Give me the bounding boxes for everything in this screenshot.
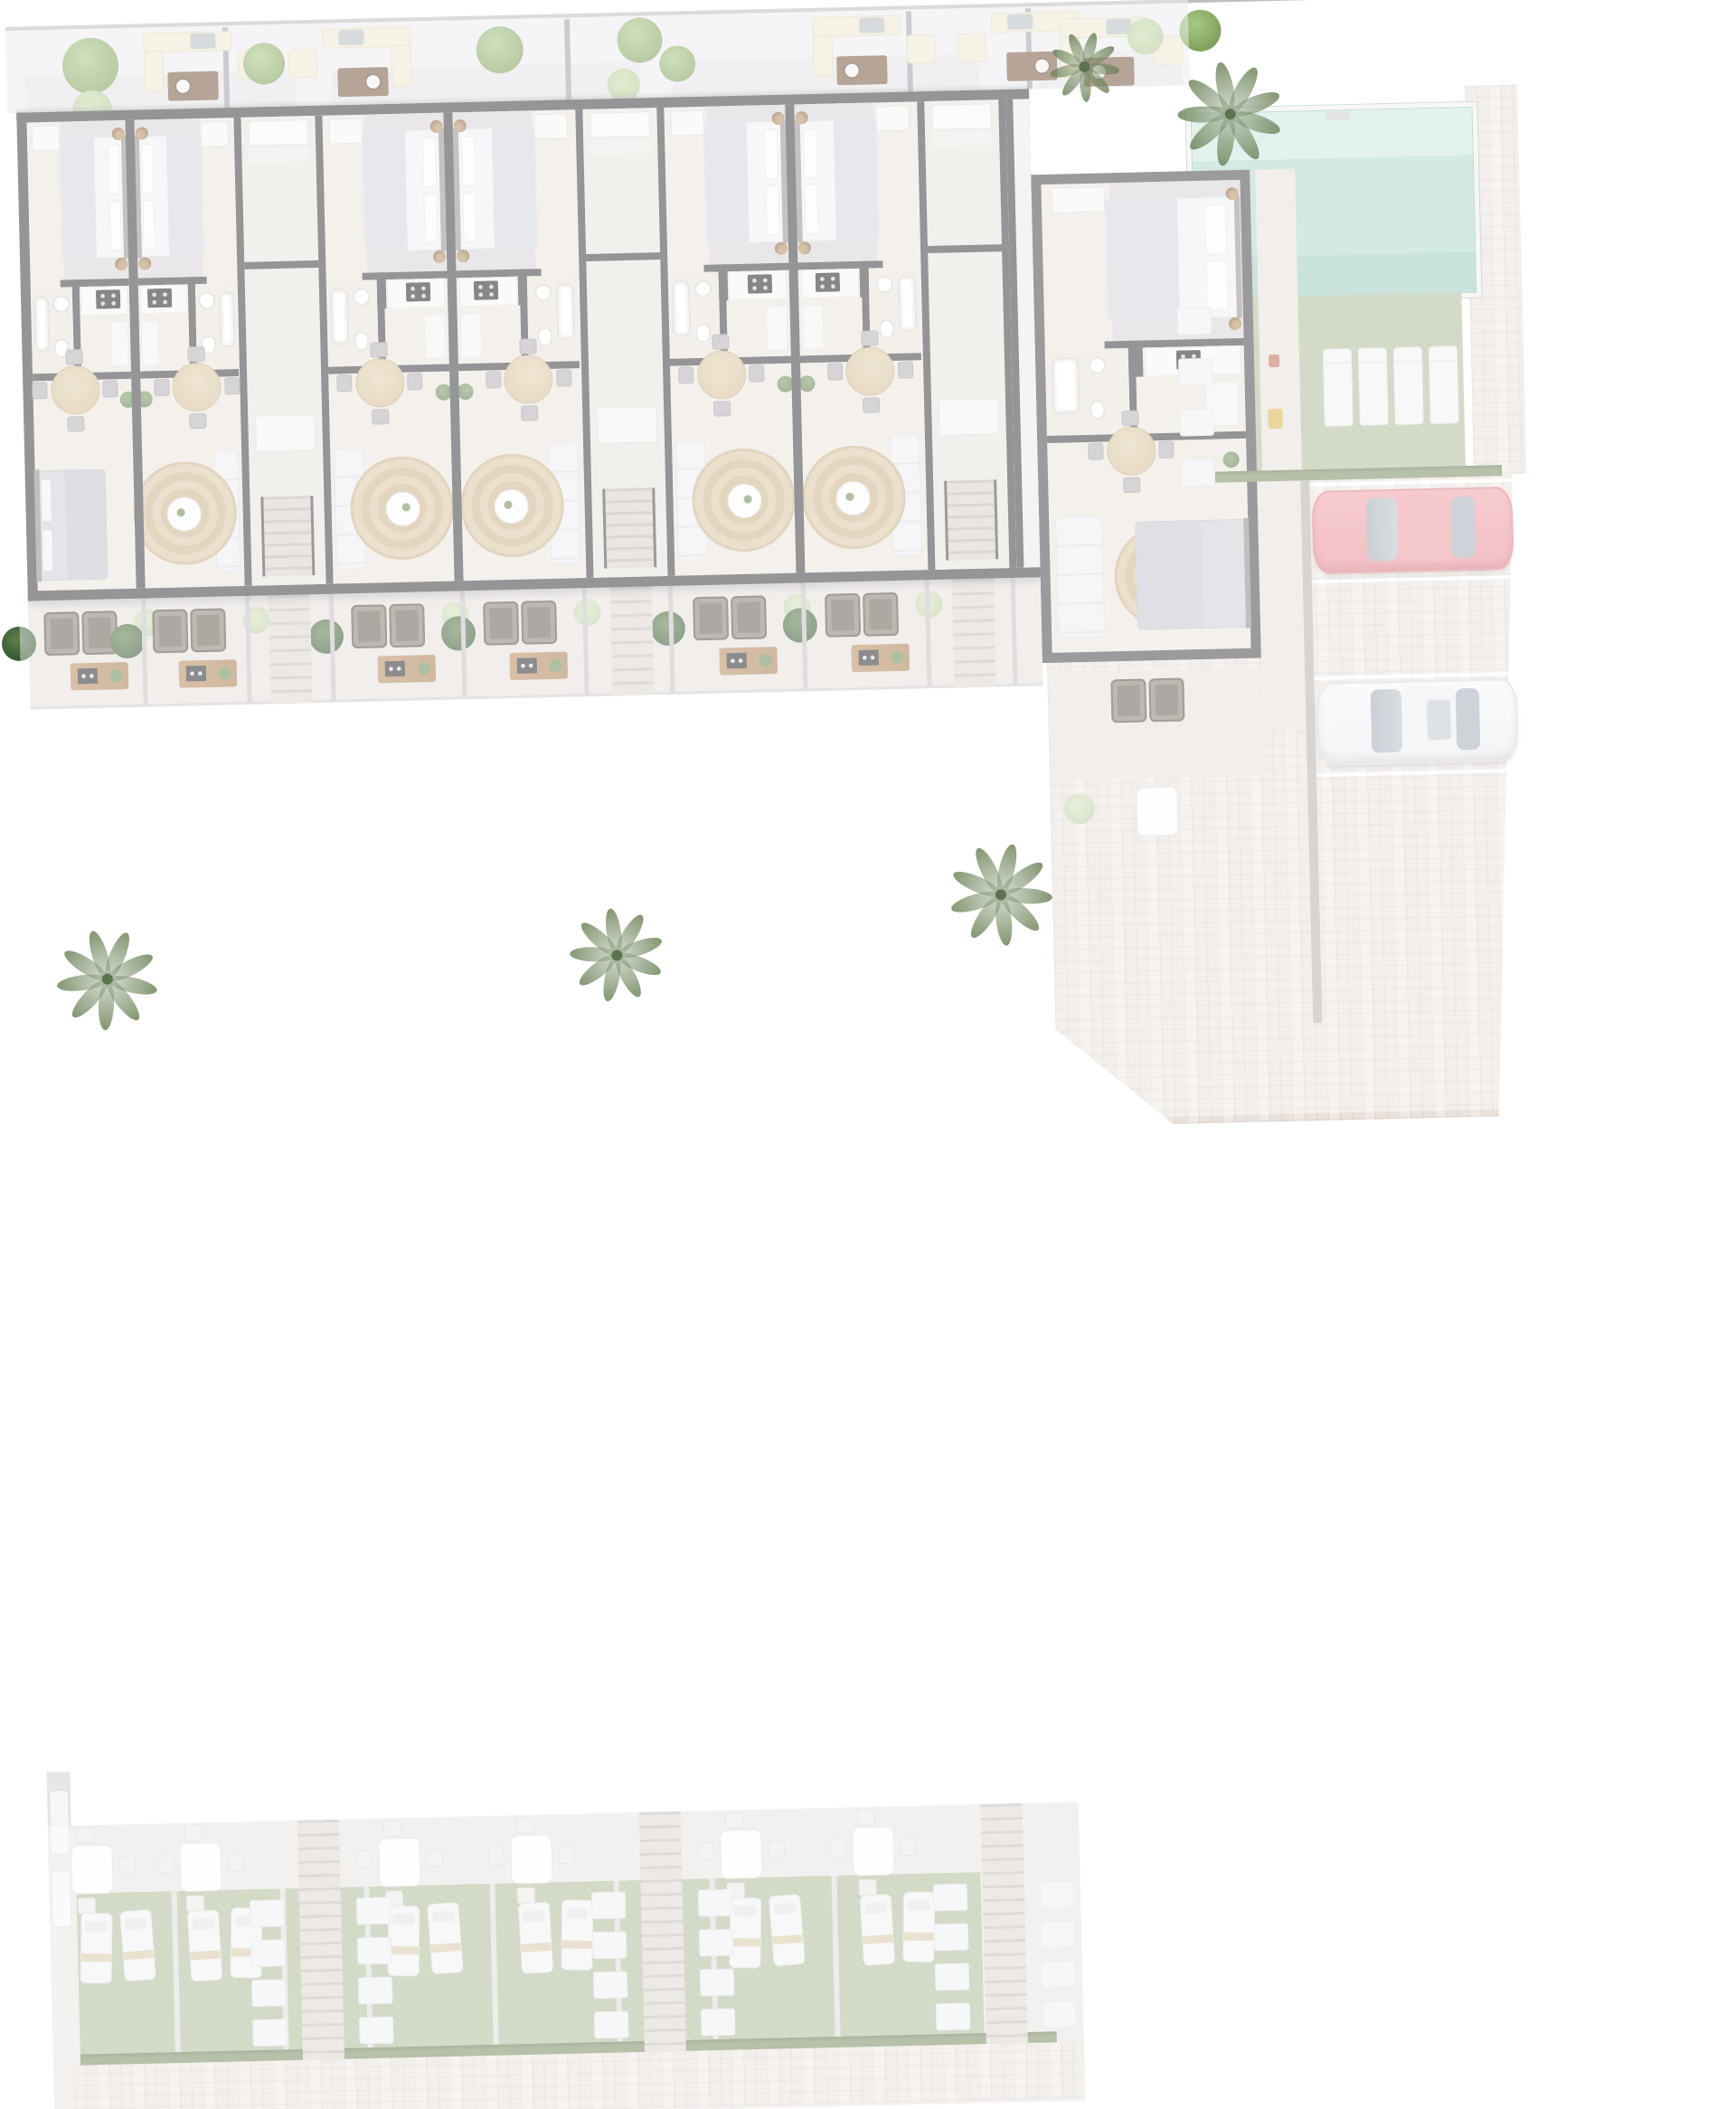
kitchen-wall [72, 287, 80, 316]
pillow [461, 137, 476, 186]
dining-table [844, 346, 894, 396]
staircase [260, 496, 315, 576]
terrace-divider-wall [564, 19, 571, 99]
stepping-pad [594, 2010, 629, 2038]
palm-frond [1223, 64, 1262, 118]
terrace-armchair [190, 608, 226, 652]
lounger-strap [190, 1950, 220, 1960]
palm-frond [56, 971, 108, 993]
terrace-armchair [825, 593, 861, 638]
kitchen-wall [518, 276, 527, 305]
plant [110, 669, 123, 682]
nightstand [112, 128, 125, 140]
nightstand [1229, 317, 1241, 330]
garden-chair [383, 1820, 401, 1836]
palm-frond [1223, 110, 1264, 164]
sink [875, 276, 892, 293]
lounger-strap [124, 1950, 155, 1960]
garden-dining-table [378, 1838, 420, 1887]
outdoor-sofa [143, 31, 231, 52]
palm-frond [993, 843, 1020, 897]
cooktop [815, 272, 839, 292]
apartment-unit [1041, 180, 1250, 653]
plant [418, 662, 430, 675]
terrace-armchair [483, 601, 519, 646]
stepping-pad [250, 1899, 285, 1927]
kitchen-cabinet [424, 314, 447, 360]
dining-chair [372, 409, 389, 424]
edge-fade [1362, 0, 1736, 1026]
headboard [1233, 195, 1241, 318]
sun-lounger [427, 1902, 464, 1974]
garden-chair [725, 1811, 743, 1828]
terrace-armchair [863, 592, 899, 637]
palm-frond [995, 889, 1043, 936]
garden-chair [698, 1842, 714, 1860]
gardens-zone [48, 1802, 1085, 2109]
lounger-headrest [125, 1917, 147, 1930]
dining-chair [519, 338, 536, 354]
lounger-headrest [566, 1908, 588, 1919]
coffee-table [167, 71, 219, 100]
double-bed [362, 129, 445, 252]
bed-blanket [64, 470, 107, 580]
grill-icon [517, 657, 537, 674]
palm-frond [1227, 88, 1282, 122]
nightstand [771, 112, 784, 125]
palm-tree [954, 847, 1048, 941]
garden-chair [859, 1879, 877, 1896]
neighbor-sofa [51, 1871, 71, 1928]
sofa [1055, 516, 1106, 638]
palm-frond [610, 952, 645, 1000]
kitchen-wall [719, 271, 728, 300]
storage-cabinet [249, 119, 309, 147]
stepping-pad [1181, 459, 1216, 487]
sun-lounger [902, 1892, 935, 1962]
dining-chair [712, 334, 729, 349]
terrace-armchair [1148, 677, 1184, 722]
bathtub [33, 296, 51, 352]
bedroom-carpet [1109, 180, 1243, 341]
sofa-throw [190, 33, 215, 50]
lounger-headrest [85, 1921, 107, 1932]
stepping-pad [359, 2017, 394, 2045]
garden-chair [186, 1895, 204, 1911]
pillow [765, 185, 779, 235]
lounger-headrest [734, 1906, 756, 1916]
second-bed [37, 469, 108, 582]
apartment-unit [26, 120, 136, 591]
wardrobe [534, 113, 568, 139]
stepping-pad [935, 1962, 970, 1991]
bathtub [898, 275, 918, 331]
stepping-pad [1043, 2000, 1078, 2029]
cooktop [96, 289, 120, 309]
pool-ladder-icon [1326, 111, 1350, 120]
dining-chair [189, 413, 206, 429]
parking-wall [1300, 480, 1322, 1023]
lounger-strap [731, 1938, 760, 1946]
dining-chair [1159, 441, 1175, 459]
nightstand [433, 251, 446, 263]
plant [1222, 451, 1239, 468]
cooktop [147, 288, 172, 308]
palm-tree [1182, 66, 1278, 162]
bathtub [219, 291, 236, 347]
dining-chair [154, 379, 169, 396]
lounger-strap [521, 1943, 551, 1953]
stepping-pad [251, 1979, 287, 2007]
palm-frond [996, 858, 1047, 902]
stepping-pad [358, 1977, 393, 2005]
pillow [423, 194, 438, 243]
bathtub [330, 288, 350, 345]
lounger-strap [81, 1953, 111, 1962]
garden-chair [515, 1817, 533, 1833]
terrace-divider [1011, 578, 1018, 685]
garden-chair [356, 1850, 373, 1868]
stepping-pad [250, 1939, 286, 1967]
terrace-armchair [521, 601, 557, 645]
storage-cabinet [255, 414, 316, 452]
palm-trunk [611, 950, 622, 960]
staircase [944, 479, 998, 560]
kitchen-wall [188, 284, 195, 313]
terrace-armchair [389, 603, 425, 648]
garden-chair [119, 1856, 136, 1874]
stepping-pad [1040, 1881, 1075, 1909]
bed-blanket [60, 138, 98, 259]
lounger-headrest [774, 1902, 797, 1915]
dining-chair [863, 397, 880, 412]
sun-lounger [119, 1909, 156, 1981]
garden-stair-path [297, 1820, 344, 2060]
garden-chair [184, 1824, 203, 1840]
floor-plan-page: { "scene": { "type": "architectural-site… [0, 0, 1736, 1054]
dining-chair [521, 405, 538, 421]
dining-table [51, 365, 100, 415]
coffee-table [1149, 559, 1184, 594]
interior-wall [586, 252, 660, 261]
pillow [763, 129, 778, 179]
grill-icon [78, 668, 98, 685]
apartment-unit [134, 118, 243, 588]
outdoor-sofa [144, 51, 165, 93]
plant [550, 659, 562, 672]
toilet [878, 319, 893, 338]
garden-chair [829, 1839, 845, 1858]
stepping-pad [699, 1929, 734, 1957]
bbq-table [851, 644, 910, 672]
dining-chair [65, 349, 82, 364]
palm-frond [600, 954, 624, 1003]
bed-blanket [1136, 521, 1203, 629]
garden-chair [768, 1840, 784, 1858]
stepping-pad [934, 1923, 969, 1951]
garden-dining-table [71, 1845, 113, 1895]
interior-wall [1047, 431, 1246, 443]
toilet [537, 327, 552, 346]
bed-blanket [491, 128, 537, 248]
palm-frond [615, 934, 664, 962]
outdoor-chair [957, 33, 986, 62]
wardrobe [670, 110, 703, 137]
faded-end-apartment [1031, 170, 1261, 664]
dining-chair [371, 342, 388, 357]
bed-blanket [1106, 199, 1180, 320]
sofa-throw [338, 30, 363, 46]
end-unit-terrace [1052, 667, 1262, 780]
bbq-table [719, 647, 778, 675]
dining-chair [336, 374, 352, 392]
wardrobe [1052, 186, 1106, 213]
palm-frond [1177, 106, 1231, 123]
palm-frond [106, 971, 158, 998]
round-tree [1179, 9, 1222, 52]
plant [458, 383, 474, 400]
dining-chair [749, 364, 764, 382]
pillow [1204, 204, 1227, 254]
dining-chair [1123, 478, 1140, 493]
terrace-plant [2, 626, 37, 661]
double-bed [137, 135, 204, 258]
bathtub [672, 280, 692, 336]
kitchen-wall [377, 279, 386, 308]
stair-lobby [233, 116, 333, 586]
lounger-strap [430, 1943, 461, 1953]
kitchen-counter [1145, 345, 1241, 376]
palm-frond [993, 894, 1014, 947]
plant [759, 654, 772, 667]
dining-chair [678, 366, 693, 383]
palm-frond [576, 950, 621, 989]
stair-path [610, 586, 655, 695]
apartment-unit [664, 105, 796, 576]
pillow [463, 193, 477, 242]
grill-icon [858, 649, 878, 666]
bed-blanket [833, 119, 879, 240]
palm-trunk [995, 889, 1006, 900]
dining-chair [1089, 443, 1104, 460]
palm-frond [578, 919, 622, 960]
coffee-table [337, 67, 389, 97]
path-prop-red [1269, 355, 1279, 367]
double-bed [1105, 196, 1239, 320]
dining-table [503, 355, 552, 404]
terrace-plant [782, 608, 817, 643]
palm-frond [1214, 113, 1238, 167]
garden-dining-table [179, 1842, 222, 1892]
garden-chair [517, 1887, 535, 1904]
terrace-armchair [152, 609, 188, 653]
outdoor-chair [906, 34, 936, 64]
pillow [42, 480, 52, 522]
interior-wall [1105, 338, 1244, 349]
palm-frond [950, 866, 1004, 902]
dining-chair [486, 371, 501, 388]
bbq-table [378, 655, 437, 683]
dining-table [697, 350, 747, 400]
sun-lounger [518, 1902, 553, 1974]
palm-frond [85, 929, 115, 982]
apartment-unit [452, 109, 584, 581]
pillow [143, 200, 156, 250]
outdoor-sofa-group [1059, 15, 1187, 90]
staircase [602, 487, 656, 568]
interior-wall [1128, 341, 1138, 438]
grill-icon [727, 653, 747, 669]
outdoor-sofa [812, 34, 833, 77]
kitchen-wall [860, 269, 869, 298]
stepping-pad [252, 2019, 288, 2047]
stepping-pad [1042, 1961, 1077, 1989]
stepping-pad [698, 1889, 733, 1917]
pillow [142, 144, 155, 194]
palm-frond [611, 912, 647, 959]
lounger-headrest [392, 1914, 414, 1925]
stepping-pad [1177, 307, 1212, 336]
apartment-building [16, 89, 1040, 601]
garden-stair-path [981, 1803, 1028, 2044]
neighbor-sofa [49, 1790, 71, 1855]
storage-cabinet [597, 406, 657, 444]
dining-chair [556, 369, 571, 386]
palm-frond [971, 845, 1008, 898]
dining-chair [407, 373, 422, 390]
headboard [1243, 518, 1251, 629]
stepping-pad [701, 2009, 736, 2037]
garden-chair [228, 1853, 244, 1871]
wardrobe [876, 105, 910, 131]
double-bed [797, 118, 880, 241]
wardrobe [201, 121, 229, 147]
terrace-armchair [351, 604, 387, 648]
pillow [108, 145, 120, 194]
apartment-unit [322, 113, 454, 584]
garden-chair [488, 1848, 505, 1866]
palm-frond [1000, 887, 1052, 906]
palm-frond [100, 930, 134, 982]
palm-frond [614, 949, 663, 979]
plant [798, 375, 815, 392]
bed-blanket [363, 131, 409, 251]
outdoor-sofa [392, 44, 412, 87]
round-rug [1114, 525, 1218, 629]
palm-frond [61, 945, 111, 986]
kitchen-cabinet [460, 313, 483, 359]
dining-chair [861, 330, 878, 345]
dining-table [1107, 426, 1156, 476]
palm-trunk [1225, 109, 1236, 119]
sun-lounger [187, 1909, 222, 1981]
outdoor-sofa [812, 15, 901, 37]
garden-chair [857, 1809, 875, 1825]
plant [219, 667, 231, 679]
dining-chair [224, 377, 240, 394]
cooktop [406, 282, 430, 302]
stepping-pad [592, 1931, 627, 1959]
lounger-headrest [864, 1902, 887, 1914]
terrace-armchair [43, 611, 80, 656]
palm-frond [98, 979, 116, 1030]
sofa-throw [1007, 14, 1033, 30]
palm-frond [1184, 75, 1236, 120]
stair-lobby [575, 108, 675, 578]
kitchen-cabinet [110, 321, 129, 366]
coffee-table [836, 55, 888, 85]
dining-chair [32, 382, 47, 399]
bbq-table [71, 662, 129, 690]
terrace-armchair [1110, 678, 1146, 723]
bbq-table [179, 659, 238, 687]
round-tree [617, 17, 663, 63]
stepping-pad [936, 2002, 971, 2030]
sofa-throw [859, 17, 884, 33]
terrace-plant [110, 624, 146, 659]
palm-frond [101, 974, 144, 1024]
side-path [1255, 168, 1308, 730]
lounger-headrest [908, 1900, 929, 1911]
lounger-strap [772, 1934, 803, 1944]
sun-lounger [80, 1913, 113, 1983]
pillow [42, 530, 52, 572]
stepping-pad [1178, 358, 1213, 386]
dining-chair [67, 416, 84, 431]
terrace-armchair [693, 596, 729, 640]
palm-frond [104, 949, 156, 986]
lounger-headrest [432, 1910, 455, 1923]
stair-path [269, 594, 313, 704]
dining-chair [898, 361, 913, 378]
pillow [422, 137, 437, 187]
stair-lobby [917, 99, 1016, 570]
lounger-headrest [192, 1918, 214, 1930]
bathtub [1052, 357, 1080, 414]
storage-cabinet [590, 138, 650, 155]
coffee-table [1006, 52, 1058, 81]
palm-tree [61, 932, 154, 1025]
garden-chair [157, 1855, 174, 1873]
stepping-pad [356, 1897, 392, 1925]
grill-icon [186, 666, 206, 682]
bed-blanket [704, 123, 750, 243]
palm-frond [949, 887, 1004, 917]
garden-dining-table [510, 1834, 552, 1884]
nightstand [775, 242, 788, 255]
dining-chair [713, 401, 731, 416]
storage-cabinet [932, 130, 992, 147]
bbq-table [509, 652, 568, 680]
stepping-pad [357, 1937, 392, 1965]
garden-stair-path [639, 1811, 686, 2052]
outdoor-sofa [1060, 36, 1080, 79]
path-prop-yellow [1268, 409, 1283, 429]
lounger-strap [904, 1933, 934, 1941]
sink [533, 284, 551, 301]
kitchen-cabinet [1205, 381, 1240, 427]
kitchen-cabinet [802, 305, 825, 351]
outdoor-sofa-group [284, 26, 412, 101]
bathroom [1045, 348, 1131, 436]
palm-frond [1212, 61, 1239, 116]
wardrobe [328, 118, 362, 145]
terrace-armchair [731, 595, 767, 639]
apartment-unit [794, 101, 926, 572]
cooktop [1176, 350, 1201, 370]
pillow [1206, 260, 1229, 310]
dining-table [172, 362, 222, 411]
